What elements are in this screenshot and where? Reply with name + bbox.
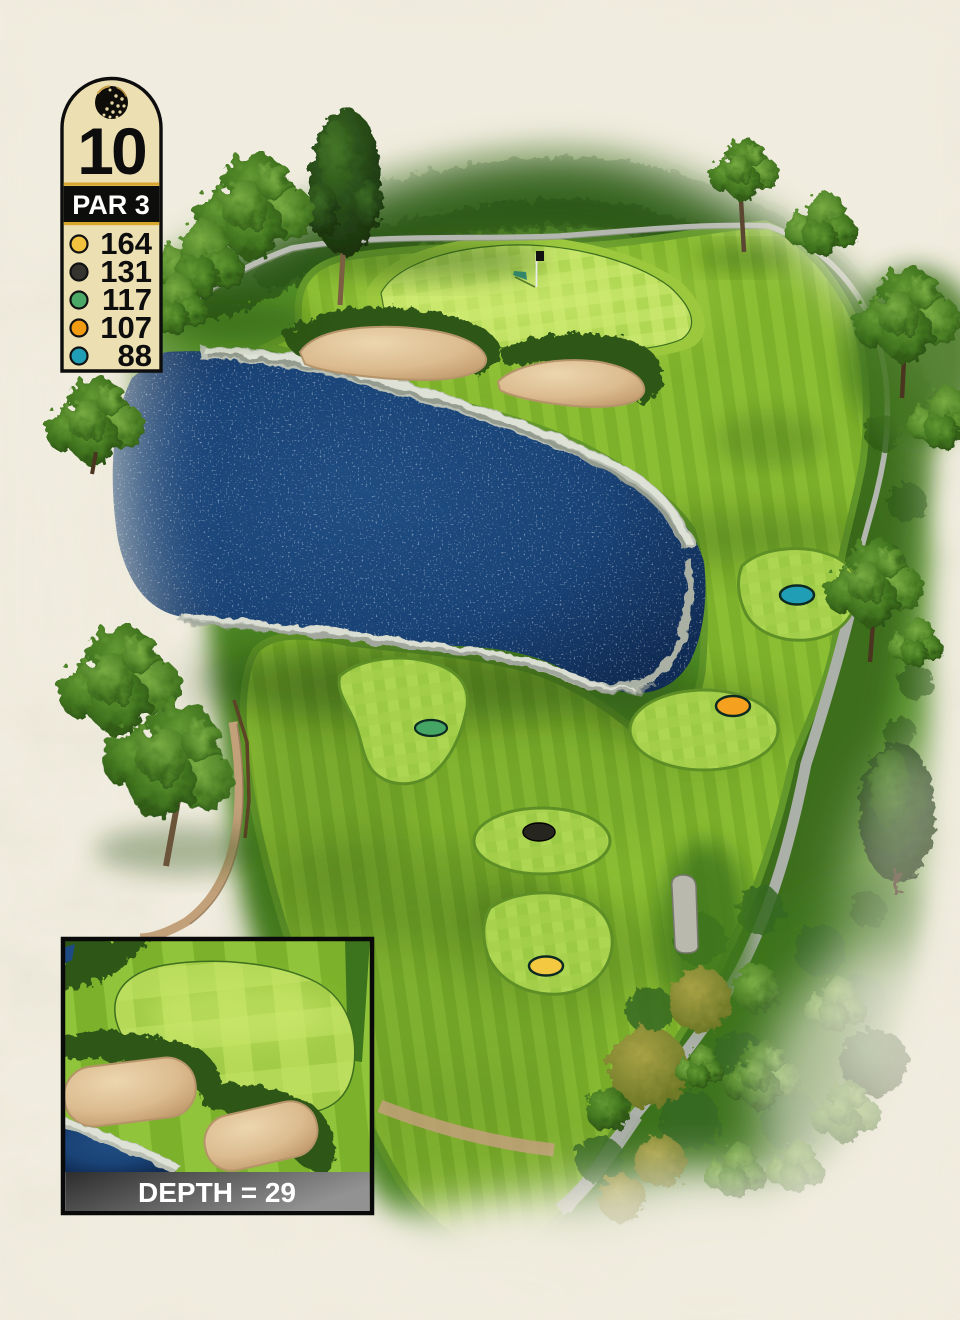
svg-text:10: 10 <box>77 114 145 188</box>
svg-text:DEPTH = 29: DEPTH = 29 <box>138 1177 296 1208</box>
svg-text:PAR 3: PAR 3 <box>72 190 150 220</box>
svg-text:88: 88 <box>118 338 152 373</box>
